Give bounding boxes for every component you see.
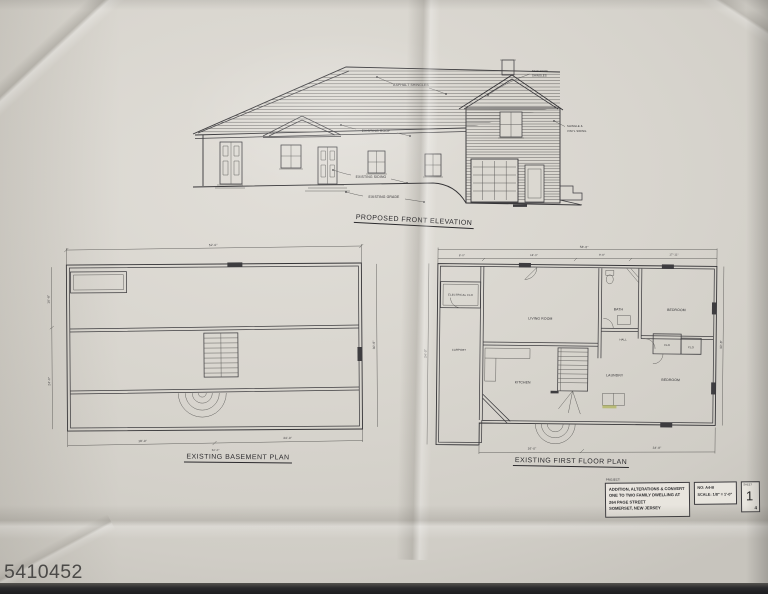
annotation-siding-2: VINYL SIDING	[567, 129, 586, 133]
annotation-existing-grade: EXISTING GRADE	[369, 195, 401, 199]
paper-crease-top-right	[659, 0, 768, 78]
dim-bottom-left: 16'-0"	[528, 447, 537, 451]
chimney	[500, 60, 516, 75]
threshold-mark	[513, 205, 527, 207]
paper-crease-top-left	[0, 0, 153, 124]
dim-left-upper: 16'-8"	[47, 295, 51, 304]
annotation-existing-roof: EXISTING ROOF	[362, 129, 391, 133]
first-floor-plan-drawing: 58'-8" 8'-0" 18'-0" 9'-8" 17'-11" 24'-0"…	[422, 241, 729, 462]
room-label-carport: CARPORT	[452, 348, 466, 352]
room-label-clo-b: CLO	[688, 345, 694, 349]
basement-walls	[66, 263, 362, 431]
room-label-laundry: LAUNDRY	[606, 373, 624, 377]
dim-top-1: 8'-0"	[459, 253, 465, 257]
paper-edge-top	[0, 0, 768, 10]
dim-top-3: 9'-8"	[599, 253, 605, 257]
garage-door	[471, 159, 518, 202]
project-line-2: ONE TO TWO FAMILY DWELLING AT	[609, 492, 686, 499]
first-floor-stair	[557, 348, 588, 414]
annotation-siding-1: SHINGLE &	[567, 124, 583, 128]
title-block-scale-box: NO: A4-B SCALE: 1/8" = 1'-0"	[694, 481, 737, 504]
title-block-project-box: ADDITION, ALTERATIONS & CONVERT ONE TO T…	[605, 482, 690, 518]
basement-window-mark-top	[227, 262, 242, 267]
first-floor-dimensions: 58'-8" 8'-0" 18'-0" 9'-8" 17'-11" 24'-0"…	[422, 243, 724, 456]
upper-window	[498, 112, 524, 138]
room-label-clo-a: CLO	[664, 343, 670, 347]
kitchen-counters	[485, 348, 530, 381]
dim-bottom-overall: 52'-0"	[212, 448, 220, 452]
room-label-living: LIVING ROOM	[528, 317, 552, 321]
window-middle	[366, 151, 387, 174]
annotation-new-roof-1: NEW ROOF	[532, 69, 548, 73]
window-mark	[711, 382, 716, 394]
dim-bottom-left: 18'-0"	[138, 439, 147, 443]
window-mark	[519, 263, 531, 268]
photo-of-architectural-plans: ASPHALT SHINGLES EXISTING ROOF NEW ROOF …	[0, 0, 768, 594]
room-label-bath: BATH	[614, 307, 624, 311]
electrical-closet: ELECTRICAL CLO	[440, 282, 480, 308]
basement-areaway-arcs	[178, 393, 226, 417]
dim-left-lower: 24'-0"	[47, 377, 51, 386]
canted-wall	[482, 394, 510, 423]
carport-wall	[479, 266, 484, 420]
window-mark	[712, 302, 717, 314]
dim-right: 30'-8"	[372, 341, 376, 350]
front-steps	[305, 185, 350, 191]
dim-bottom-right: 34'-0"	[283, 436, 292, 440]
window-mark	[660, 423, 672, 428]
sheet-of: 4	[755, 505, 758, 510]
dim-right: 30'-8"	[719, 340, 723, 349]
title-block-sheet-box: SHEET 1 4	[741, 481, 760, 512]
side-steps	[560, 186, 582, 205]
watermark-number: 5410452	[4, 561, 83, 584]
title-block: PROJECT: ADDITION, ALTERATIONS & CONVERT…	[603, 476, 761, 523]
drawing-scale: SCALE: 1/8" = 1'-0"	[697, 492, 733, 500]
room-label-bedroom-top: BEDROOM	[667, 308, 686, 312]
room-label-electrical: ELECTRICAL CLO	[448, 293, 473, 297]
photo-bottom-edge	[0, 583, 768, 594]
left-double-door	[215, 142, 245, 188]
window-mark	[662, 264, 674, 269]
room-label-kitchen: KITCHEN	[515, 380, 531, 384]
laundry-appliances	[602, 393, 624, 405]
project-line-4: SOMERSET, NEW JERSEY	[609, 505, 686, 512]
dim-top-4: 17'-11"	[669, 252, 678, 256]
bath-fixtures	[605, 268, 639, 324]
annotation-existing-siding: EXISTING SIDING	[356, 175, 387, 179]
dim-top: 52'-0"	[209, 243, 218, 247]
basement-plan-title: EXISTING BASEMENT PLAN	[152, 453, 324, 462]
window-left	[279, 145, 303, 169]
two-story-block	[459, 60, 582, 207]
basement-stair	[204, 333, 238, 377]
dim-bottom-right: 34'-8"	[653, 446, 662, 450]
basement-dimensions: 52'-0" 16'-8" 24'-0" 30'-8" 18'-0" 34'-0…	[46, 242, 377, 453]
porch-arcs	[535, 424, 575, 444]
title-block-project-label: PROJECT:	[606, 478, 621, 482]
dim-top-overall: 58'-8"	[580, 245, 589, 249]
gable-roof	[459, 75, 563, 110]
highlight-mark	[602, 405, 616, 408]
sheet-label: SHEET	[743, 483, 752, 486]
threshold-mark	[551, 391, 559, 394]
elevation-drawing: ASPHALT SHINGLES EXISTING ROOF NEW ROOF …	[183, 53, 603, 231]
basement-window-mark-right	[357, 347, 362, 361]
sheet-number: 1	[746, 488, 753, 503]
closets: CLO CLO	[653, 334, 701, 355]
annotation-asphalt: ASPHALT SHINGLES	[393, 83, 429, 87]
dim-left: 24'-0"	[423, 349, 427, 358]
entry-door	[525, 165, 544, 202]
room-label-bedroom-bottom: BEDROOM	[661, 378, 680, 382]
room-label-hall: HALL	[619, 337, 627, 341]
basement-plan-drawing: 52'-0" 16'-8" 24'-0" 30'-8" 18'-0" 34'-0…	[41, 237, 398, 474]
window-right	[423, 154, 443, 177]
annotation-new-roof-2: SHINGLES	[532, 74, 547, 78]
dim-top-2: 18'-0"	[530, 253, 538, 257]
